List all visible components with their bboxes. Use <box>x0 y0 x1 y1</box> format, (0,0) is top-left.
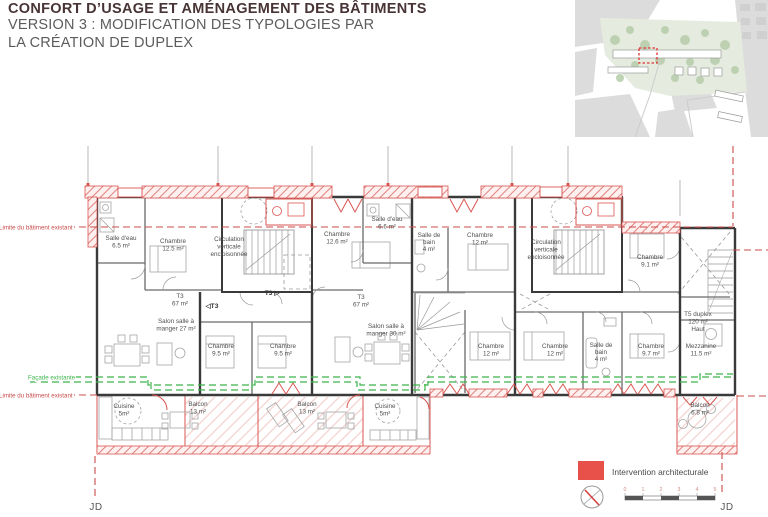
room-label-balcon-b: Balcon13 m² <box>297 401 317 416</box>
unit-label-t3-b: T367 m² <box>353 294 369 309</box>
limit-lines <box>2 146 768 496</box>
north-compass <box>581 486 603 508</box>
room-label-cuisine-a: Cuisine5m² <box>114 403 135 418</box>
winder-stair <box>415 293 465 330</box>
duplex-stair <box>708 250 733 313</box>
room-label-mezzanine: Mezzanine11.5 m² <box>686 343 717 358</box>
scale-tick-1: 1 <box>642 487 645 493</box>
unit-label-t5-duplex: T5 duplex120 m²Haut <box>684 311 713 333</box>
scale-tick-2: 2 <box>660 487 663 493</box>
scale-tick-5: 5 <box>714 487 717 493</box>
author-initials-right: JD <box>720 502 733 513</box>
new-wc-rooms <box>266 199 622 225</box>
room-label-chambre-12-b: Chambre12 m² <box>478 343 504 358</box>
room-label-chambre-9-1: Chambre9.1 m² <box>637 254 663 269</box>
limit-bottom-label: Limite du bâtiment existant <box>0 393 73 400</box>
room-label-chambre-9-5-b: Chambre9.5 m² <box>270 343 296 358</box>
stair-core-1 <box>241 198 294 274</box>
title-block: CONFORT D’USAGE ET AMÉNAGEMENT DES BÂTIM… <box>8 1 427 52</box>
page-title: CONFORT D’USAGE ET AMÉNAGEMENT DES BÂTIM… <box>8 1 427 17</box>
room-label-chambre-12-6: Chambre12.6 m² <box>324 231 350 246</box>
facade-line-1 <box>30 377 733 385</box>
scale-tick-3: 3 <box>678 487 681 493</box>
unit-label-t3-a: T367 m² <box>172 293 188 308</box>
room-label-balcon-c: Balcon6.8 m² <box>690 402 710 417</box>
legend-intervention-swatch <box>578 461 604 480</box>
limit-top-label: Limite du bâtiment existant <box>0 225 73 232</box>
floor-plan: Limite du bâtiment existant Façade exist… <box>0 0 768 517</box>
witness-lines <box>87 146 681 216</box>
room-label-chambre-9-5-a: Chambre9.5 m² <box>208 343 234 358</box>
entry-marker-t3-right: T3 ▷ <box>265 290 281 297</box>
room-label-salon-a: Salon salle àmanger 27 m² <box>156 318 195 333</box>
page-subtitle-line1: VERSION 3 : MODIFICATION DES TYPOLOGIES … <box>8 17 427 35</box>
room-label-chambre-12-c: Chambre12 m² <box>542 343 568 358</box>
legend: Intervention architecturale <box>578 461 709 480</box>
room-label-circulation-b: Circulationverticaleencloisonnée <box>527 239 565 261</box>
room-label-sdb-b: Salle debain4 m² <box>590 342 613 363</box>
stair-core-2 <box>551 198 604 274</box>
room-label-salon-b: Salon salle àmanger 30 m² <box>366 323 405 338</box>
scale-bar: 0 1 2 3 4 5 <box>624 487 717 500</box>
limit-line-right <box>733 146 768 250</box>
entry-marker-t3-left: ◁T3 <box>205 303 219 310</box>
room-label-chambre-12-5: Chambre12.5 m² <box>160 238 186 253</box>
room-label-salle-deau-a: Salle d'eau6.5 m² <box>106 235 137 250</box>
facade-label: Façade existante <box>28 375 76 382</box>
scale-tick-4: 4 <box>696 487 699 493</box>
room-label-salle-deau-b: Salle d'eau6.6 m² <box>372 216 403 231</box>
page: CONFORT D’USAGE ET AMÉNAGEMENT DES BÂTIM… <box>0 0 768 517</box>
room-label-balcon-a: Balcon13 m² <box>188 401 208 416</box>
scale-tick-0: 0 <box>624 487 627 493</box>
room-label-chambre-9-7: Chambre9.7 m² <box>638 343 664 358</box>
legend-intervention-label: Intervention architecturale <box>612 467 709 477</box>
room-label-sdb-a: Salle debain4 m² <box>418 232 441 253</box>
author-initials-left: JD <box>89 502 102 513</box>
room-label-circulation-a: Circulationverticaleencloisonnée <box>210 236 248 258</box>
room-label-cuisine-b: Cuisine5m² <box>375 403 396 418</box>
page-subtitle-line2: LA CRÉATION DE DUPLEX <box>8 35 427 53</box>
